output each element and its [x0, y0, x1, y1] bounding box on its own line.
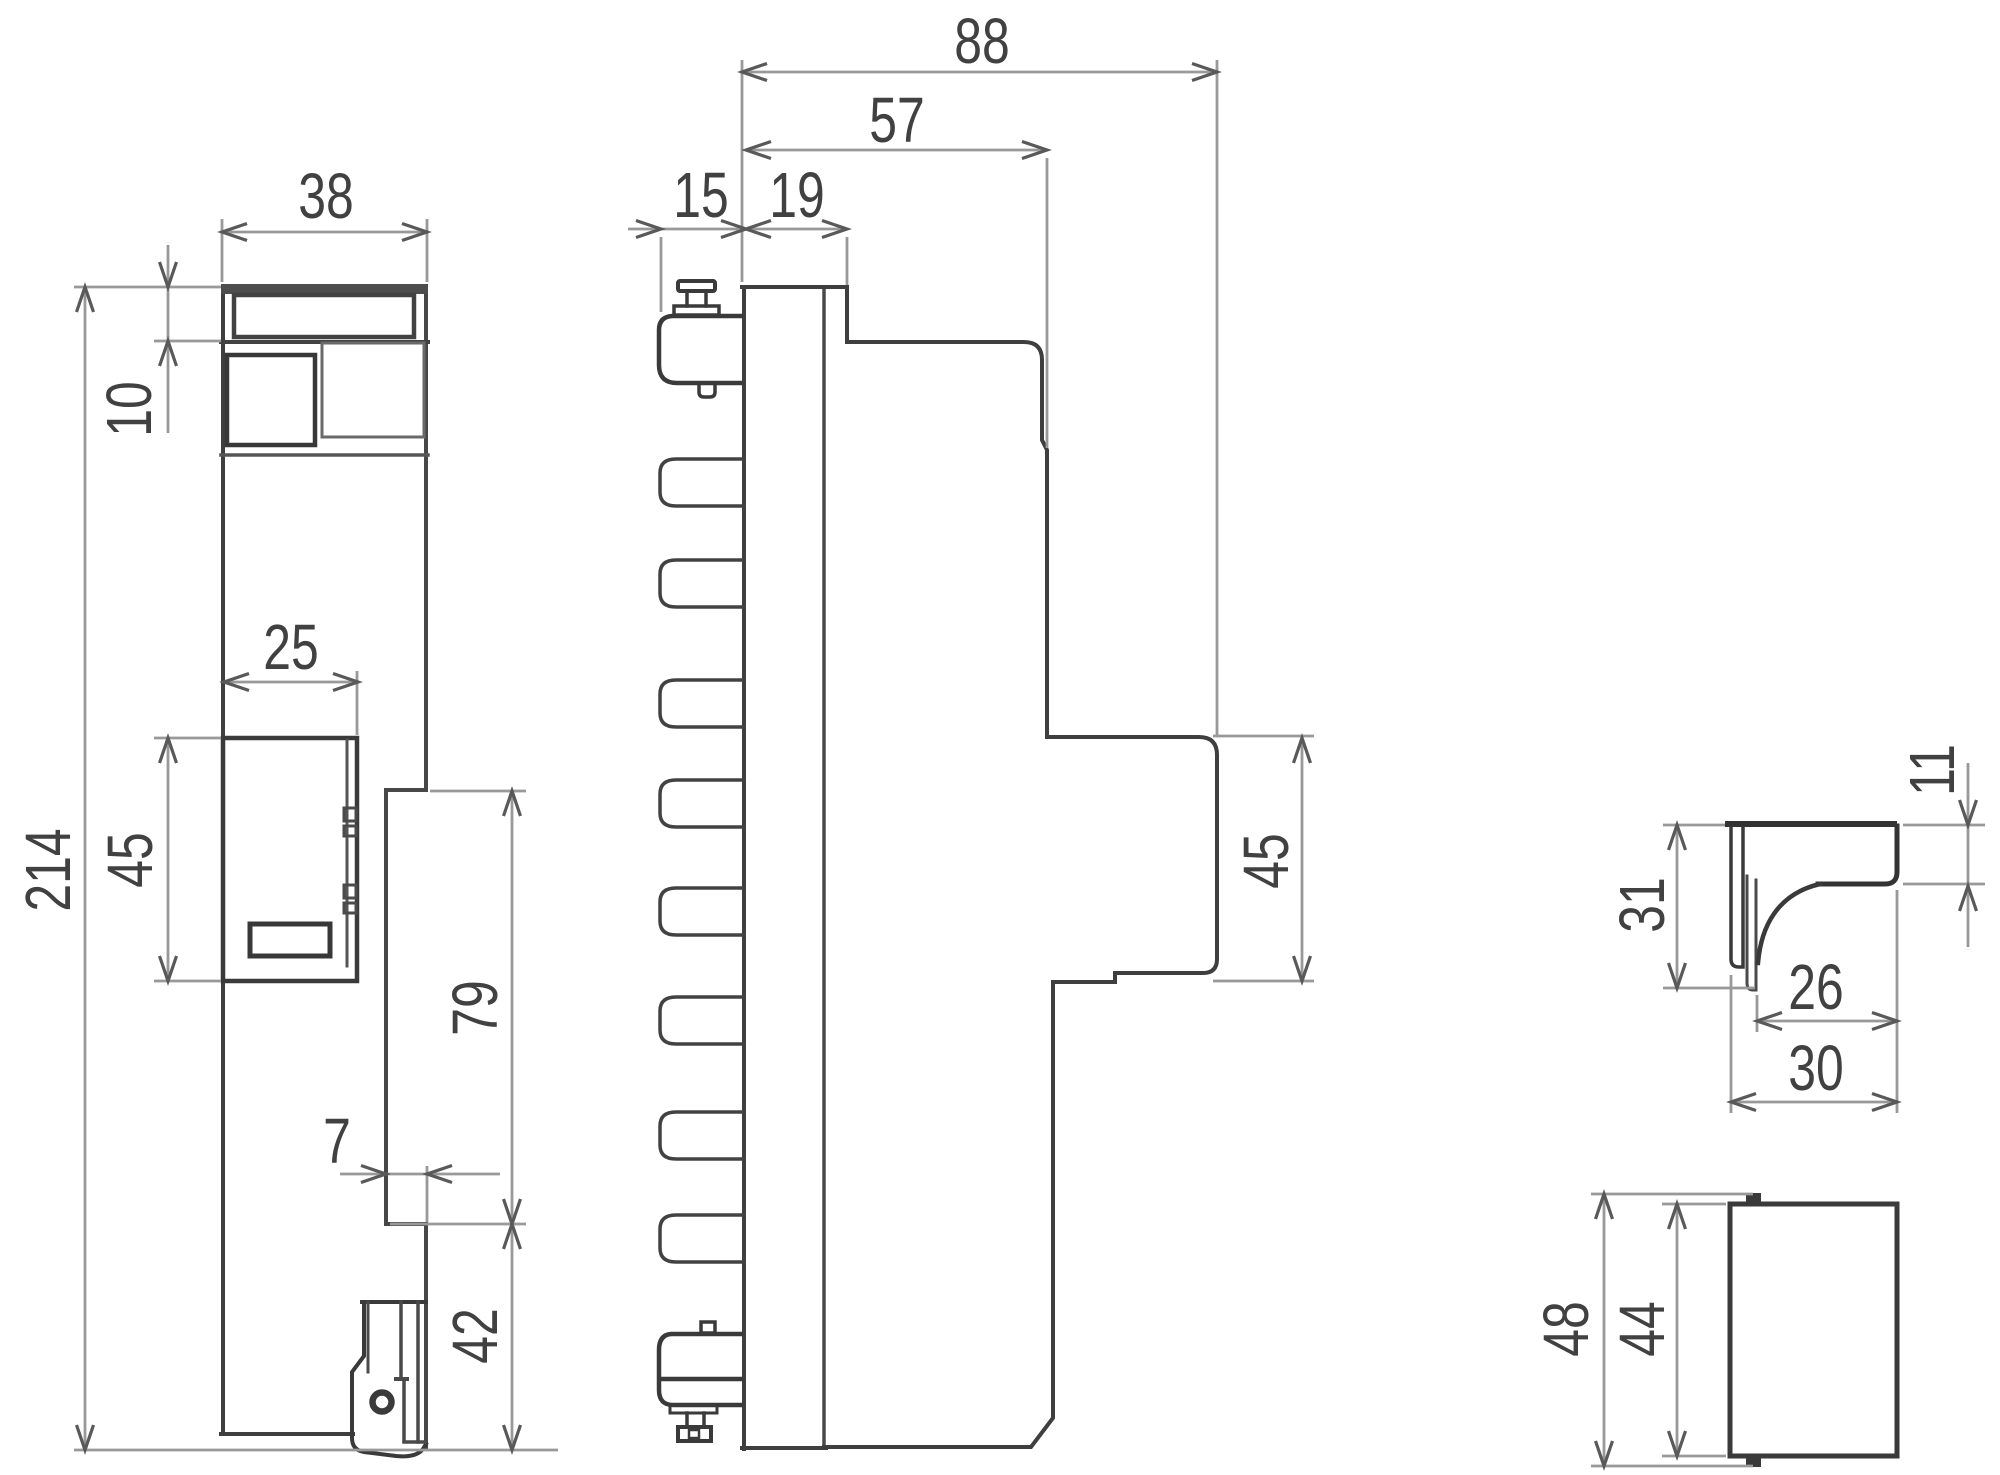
svg-text:31: 31 [1607, 877, 1678, 933]
svg-text:88: 88 [954, 6, 1010, 77]
svg-text:45: 45 [1231, 833, 1302, 889]
svg-text:214: 214 [13, 828, 84, 911]
svg-text:19: 19 [769, 160, 825, 231]
svg-text:48: 48 [1531, 1301, 1602, 1357]
svg-text:7: 7 [323, 1106, 351, 1177]
svg-text:10: 10 [94, 381, 165, 437]
svg-text:57: 57 [869, 85, 925, 156]
svg-text:15: 15 [673, 160, 729, 231]
svg-text:26: 26 [1788, 952, 1844, 1023]
svg-text:79: 79 [440, 980, 511, 1036]
svg-text:25: 25 [263, 612, 319, 683]
svg-text:42: 42 [440, 1308, 511, 1364]
svg-text:38: 38 [298, 161, 354, 232]
svg-text:11: 11 [1897, 744, 1968, 796]
svg-text:44: 44 [1607, 1301, 1678, 1357]
svg-text:30: 30 [1788, 1033, 1844, 1104]
svg-text:45: 45 [95, 832, 166, 888]
